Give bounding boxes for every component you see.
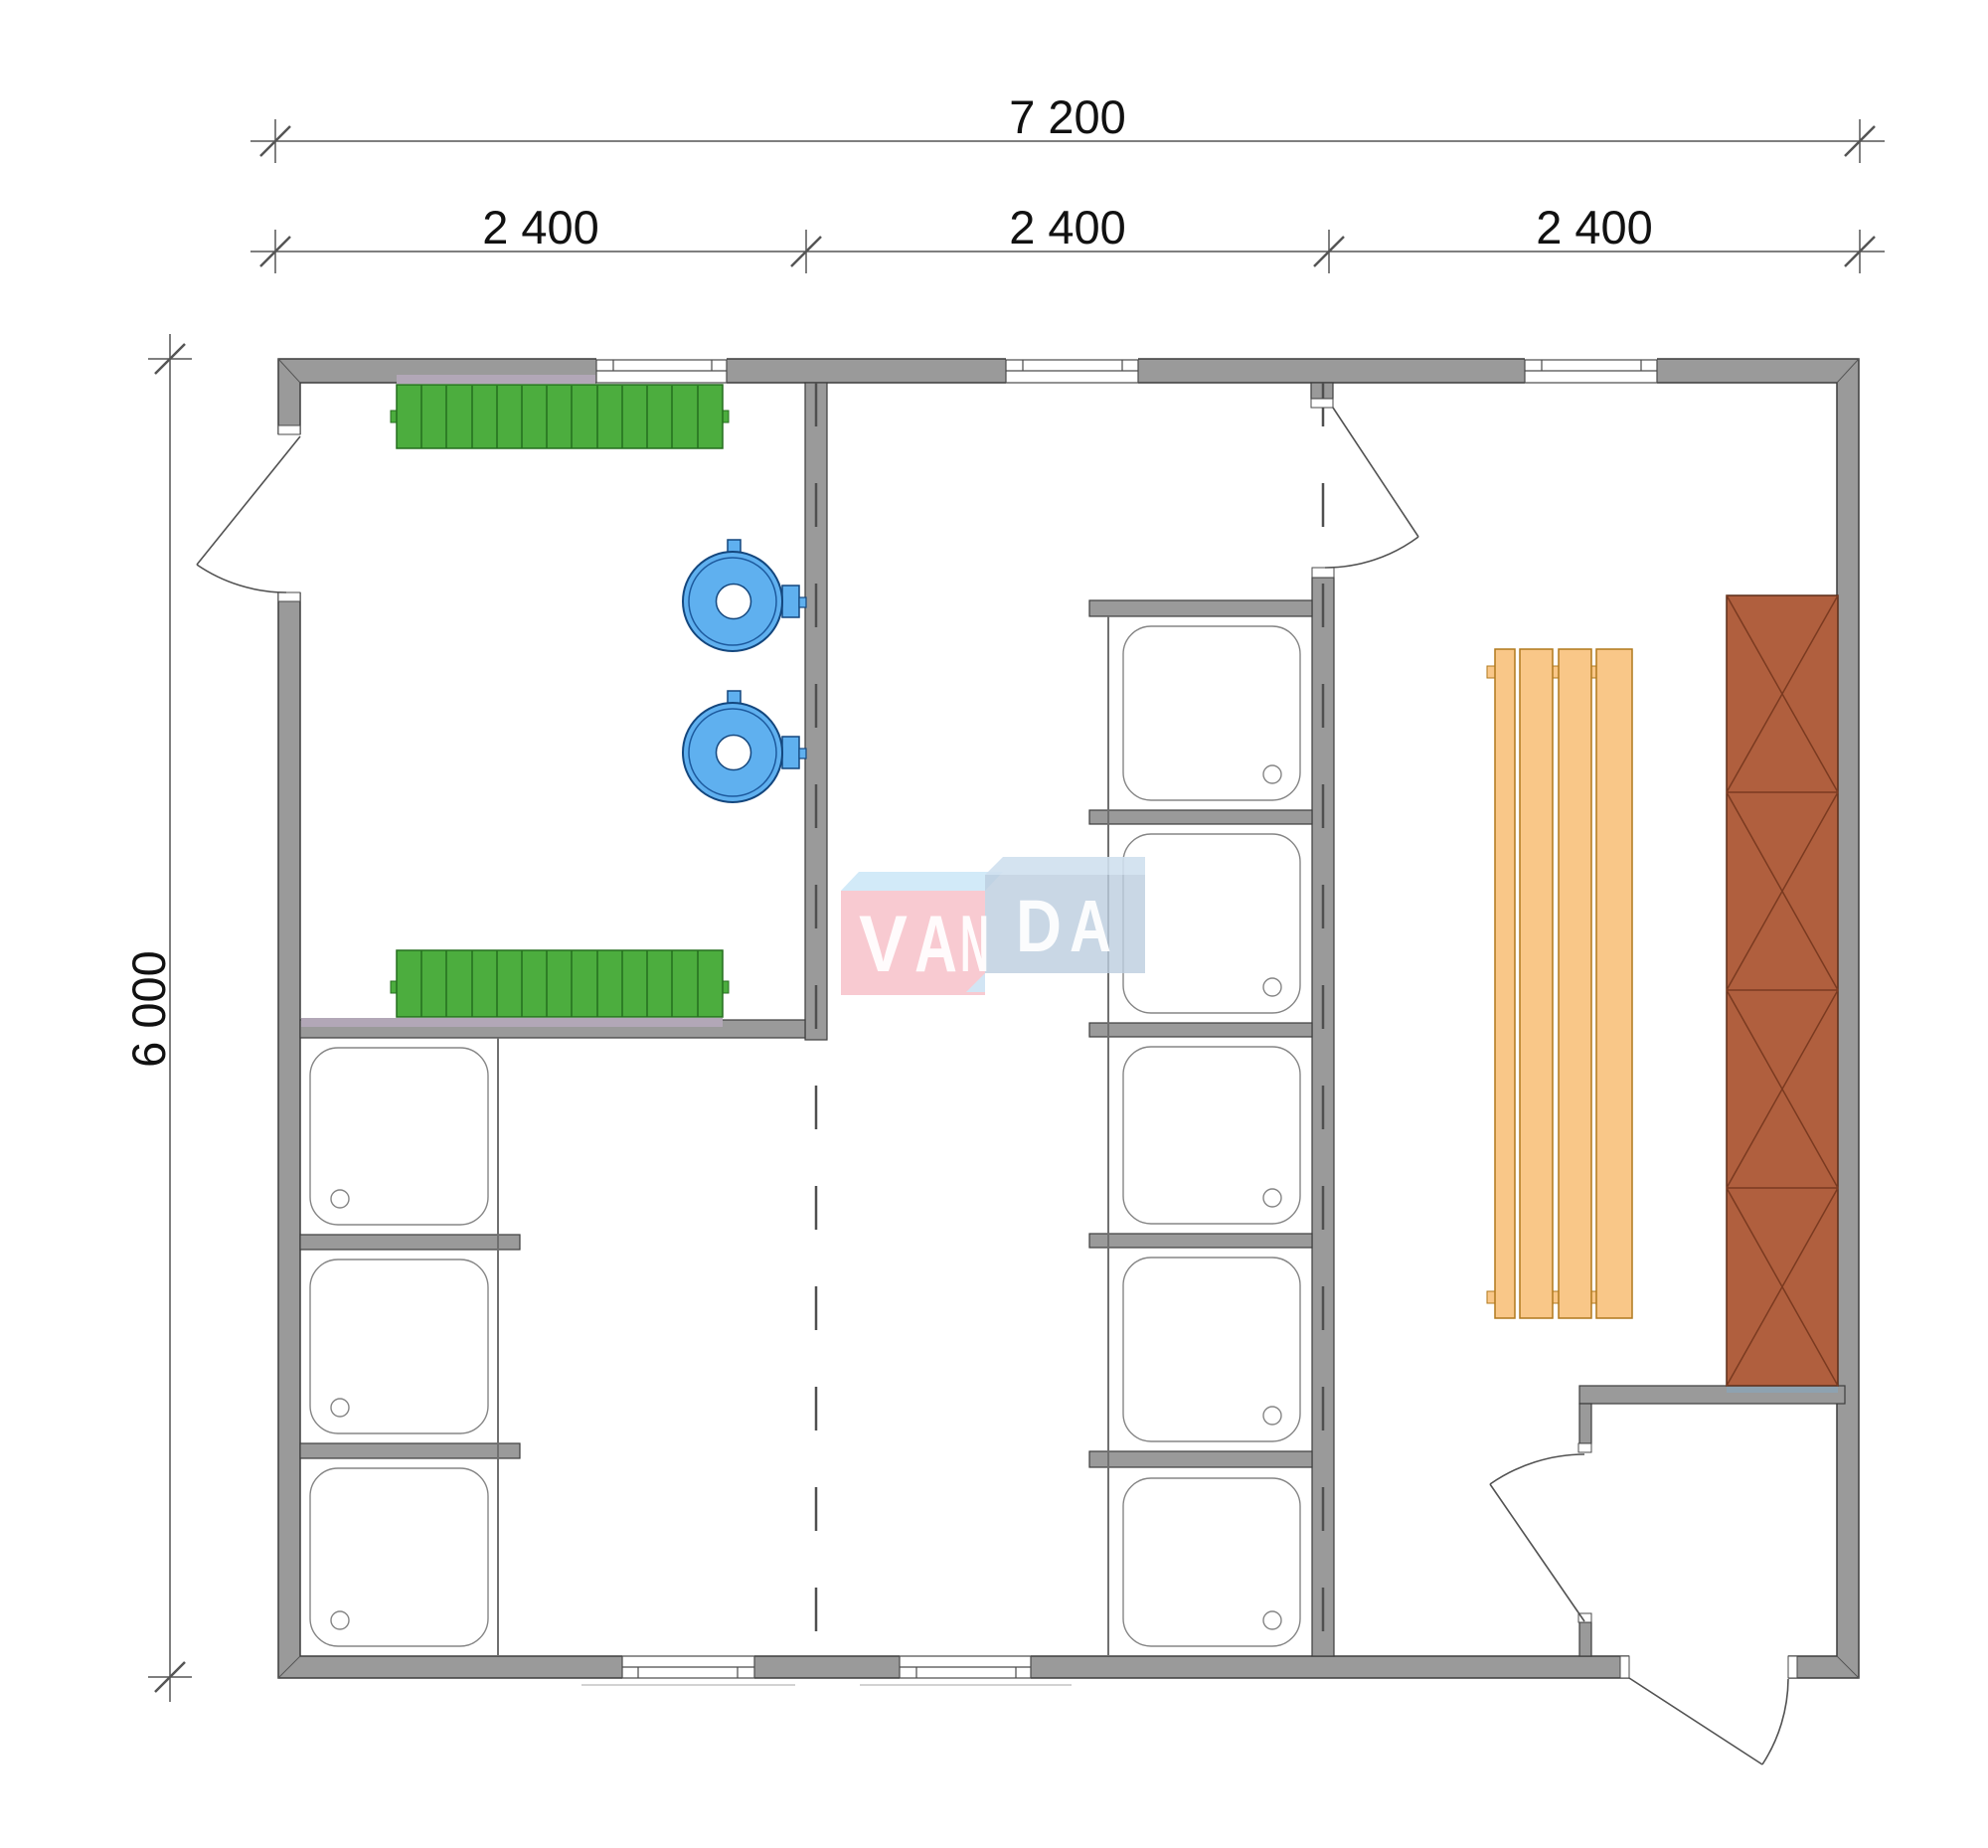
svg-text:6 000: 6 000: [122, 950, 175, 1068]
svg-text:V: V: [859, 900, 908, 989]
svg-text:2 400: 2 400: [1536, 201, 1653, 253]
svg-text:A: A: [914, 900, 957, 989]
svg-text:2 400: 2 400: [482, 201, 599, 253]
svg-text:A: A: [1070, 885, 1111, 967]
svg-text:N: N: [960, 900, 989, 989]
svg-text:2 400: 2 400: [1009, 201, 1126, 253]
svg-text:7 200: 7 200: [1009, 90, 1126, 143]
svg-text:D: D: [1016, 885, 1062, 967]
